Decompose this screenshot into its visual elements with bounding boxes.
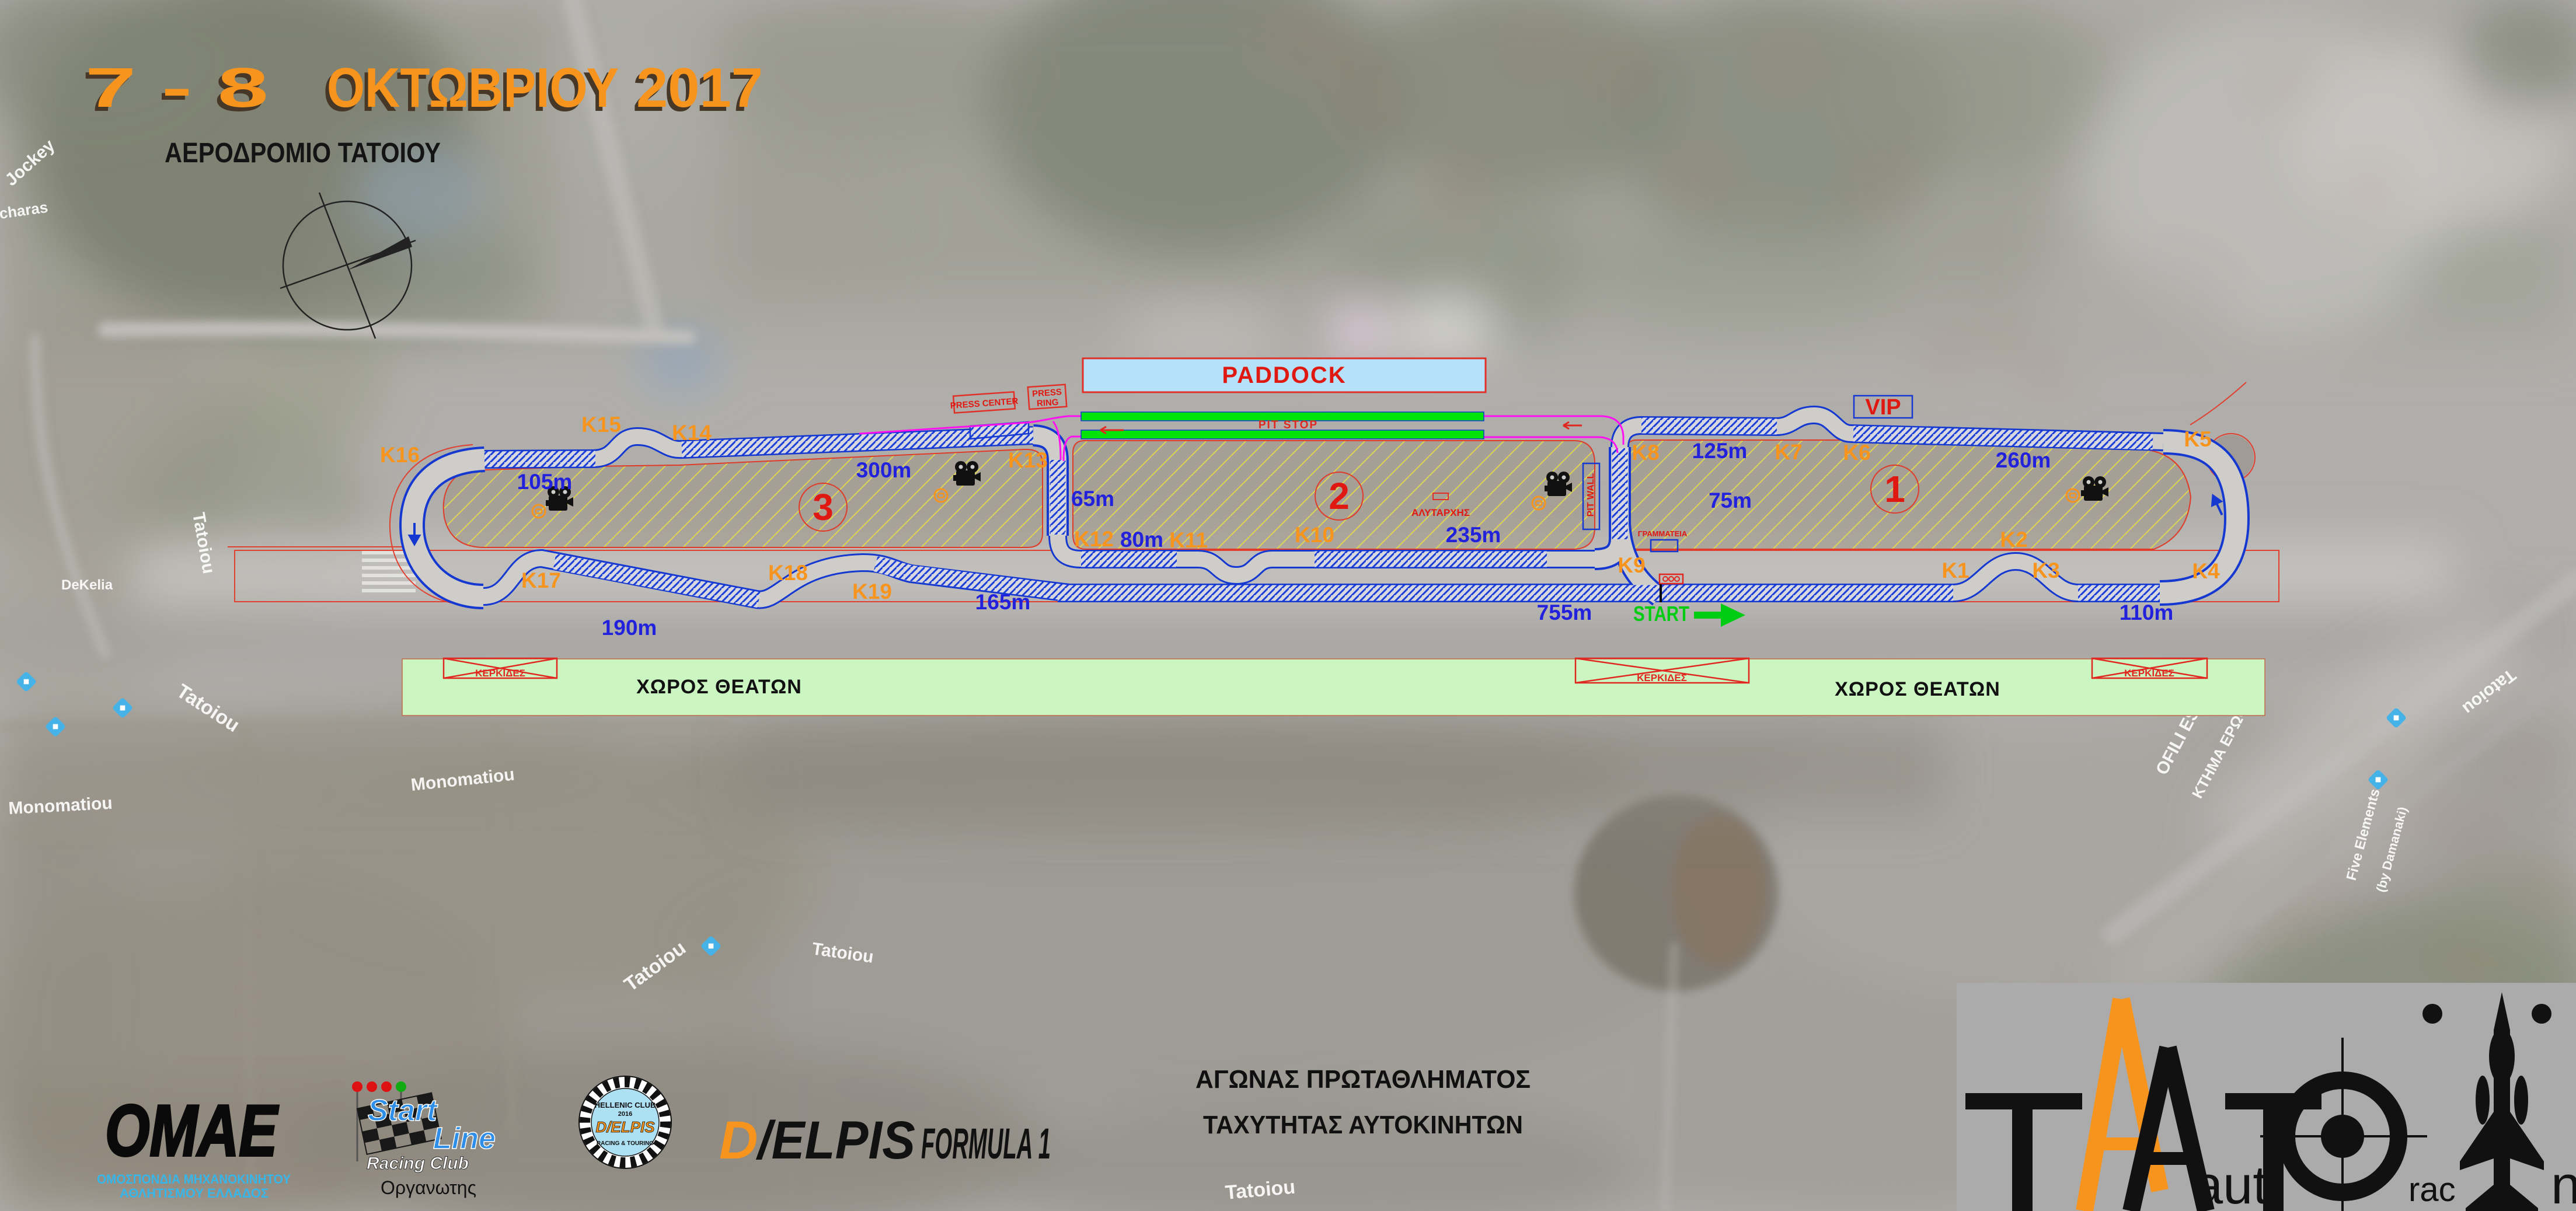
svg-text:Start: Start	[368, 1094, 438, 1128]
svg-text:Οργανωτης: Οργανωτης	[381, 1177, 476, 1198]
svg-text:ΑΛΥΤΑΡΧΗΣ: ΑΛΥΤΑΡΧΗΣ	[1411, 507, 1470, 518]
svg-text:2017: 2017	[636, 57, 763, 119]
svg-text:755m: 755m	[1537, 601, 1592, 624]
svg-text:ΚΕΡΚΙΔΕΣ: ΚΕΡΚΙΔΕΣ	[475, 668, 525, 679]
svg-text:HELLENIC CLUB: HELLENIC CLUB	[595, 1101, 656, 1109]
svg-text:ng: ng	[2551, 1156, 2576, 1211]
svg-text:rac: rac	[2408, 1171, 2456, 1209]
svg-text:ΤΑΧΥΤΗΤΑΣ ΑΥΤΟΚΙΝΗΤΩΝ: ΤΑΧΥΤΗΤΑΣ ΑΥΤΟΚΙΝΗΤΩΝ	[1203, 1111, 1523, 1139]
svg-text:ΟΚΤΩΒΡΙΟΥ: ΟΚΤΩΒΡΙΟΥ	[327, 57, 619, 119]
svg-text:K6: K6	[1843, 441, 1870, 465]
svg-text:START: START	[1633, 602, 1689, 626]
svg-text:K16: K16	[380, 443, 420, 467]
svg-text:ΟΜΟΣΠΟΝΔΙΑ ΜΗΧΑΝΟΚΙΝΗΤΟΥ: ΟΜΟΣΠΟΝΔΙΑ ΜΗΧΑΝΟΚΙΝΗΤΟΥ	[97, 1172, 291, 1186]
svg-text:65m: 65m	[1071, 487, 1114, 511]
svg-text:110m: 110m	[2120, 601, 2174, 624]
svg-text:ΑΕΡΟΔΡΟΜΙΟ ΤΑΤΟΙΟΥ: ΑΕΡΟΔΡΟΜΙΟ ΤΑΤΟΙΟΥ	[165, 138, 441, 169]
svg-text:D: D	[719, 1111, 758, 1170]
svg-text:235m: 235m	[1446, 523, 1501, 547]
svg-text:2016: 2016	[618, 1111, 632, 1118]
svg-text:165m: 165m	[975, 590, 1031, 614]
svg-text:Line: Line	[433, 1122, 496, 1156]
svg-text:/ELPIS: /ELPIS	[755, 1111, 915, 1170]
svg-text:ΚΕΡΚΙΔΕΣ: ΚΕΡΚΙΔΕΣ	[1637, 672, 1687, 683]
svg-text:RACING & TOURING: RACING & TOURING	[597, 1140, 654, 1147]
svg-text:K3: K3	[2032, 559, 2059, 582]
svg-text:aut: aut	[2193, 1156, 2268, 1211]
svg-text:K9: K9	[1618, 553, 1645, 577]
svg-text:K11: K11	[1169, 528, 1208, 552]
svg-text:DeKelia: DeKelia	[61, 577, 113, 593]
svg-text:80m: 80m	[1120, 528, 1163, 552]
svg-text:ΚΕΡΚΙΔΕΣ: ΚΕΡΚΙΔΕΣ	[2124, 668, 2174, 679]
svg-text:Racing Club: Racing Club	[367, 1154, 469, 1173]
svg-text:K5: K5	[2184, 427, 2211, 451]
svg-text:1: 1	[1884, 468, 1905, 510]
svg-text:K12: K12	[1074, 527, 1114, 551]
svg-text:VIP: VIP	[1865, 395, 1901, 420]
svg-text:K4: K4	[2192, 559, 2220, 583]
svg-text:125m: 125m	[1692, 439, 1748, 463]
svg-text:PIT STOP: PIT STOP	[1259, 419, 1318, 431]
svg-text:2: 2	[1329, 475, 1350, 517]
svg-text:190m: 190m	[602, 616, 657, 640]
svg-text:K15: K15	[581, 413, 621, 437]
svg-text:300m: 300m	[856, 458, 912, 482]
svg-text:3: 3	[813, 486, 834, 528]
svg-text:D/ELPIS: D/ELPIS	[595, 1118, 655, 1136]
svg-text:K1: K1	[1941, 559, 1969, 582]
svg-text:K8: K8	[1632, 441, 1659, 465]
svg-text:K18: K18	[768, 561, 808, 585]
svg-text:105m: 105m	[517, 470, 573, 494]
svg-text:75m: 75m	[1709, 488, 1752, 512]
svg-text:OMAE: OMAE	[105, 1091, 279, 1171]
svg-text:PADDOCK: PADDOCK	[1222, 362, 1346, 388]
svg-text:K2: K2	[2000, 528, 2027, 552]
svg-text:260m: 260m	[1996, 448, 2051, 472]
svg-text:K19: K19	[852, 580, 892, 603]
svg-text:K14: K14	[672, 421, 712, 445]
svg-text:ΑΓΩΝΑΣ ΠΡΩΤΑΘΛΗΜΑΤΟΣ: ΑΓΩΝΑΣ ΠΡΩΤΑΘΛΗΜΑΤΟΣ	[1195, 1065, 1531, 1094]
svg-text:K10: K10	[1295, 523, 1334, 547]
svg-text:ΧΩΡΟΣ ΘΕΑΤΩΝ: ΧΩΡΟΣ ΘΕΑΤΩΝ	[636, 676, 802, 698]
svg-text:K17: K17	[521, 568, 561, 592]
svg-text:PIT WALL: PIT WALL	[1586, 473, 1596, 516]
svg-text:RING: RING	[1036, 397, 1059, 409]
svg-text:FORMULA 1: FORMULA 1	[921, 1119, 1051, 1168]
svg-text:ΑΘΛΗΤΙΣΜΟΥ ΕΛΛΑΔΟΣ: ΑΘΛΗΤΙΣΜΟΥ ΕΛΛΑΔΟΣ	[120, 1186, 269, 1200]
svg-text:ΓΡΑΜΜΑΤΕΙΑ: ΓΡΑΜΜΑΤΕΙΑ	[1638, 529, 1688, 538]
svg-text:K13: K13	[1008, 448, 1048, 472]
svg-text:K7: K7	[1775, 440, 1802, 464]
svg-text:7 - 8: 7 - 8	[85, 57, 269, 119]
svg-text:ΧΩΡΟΣ ΘΕΑΤΩΝ: ΧΩΡΟΣ ΘΕΑΤΩΝ	[1835, 678, 2000, 700]
